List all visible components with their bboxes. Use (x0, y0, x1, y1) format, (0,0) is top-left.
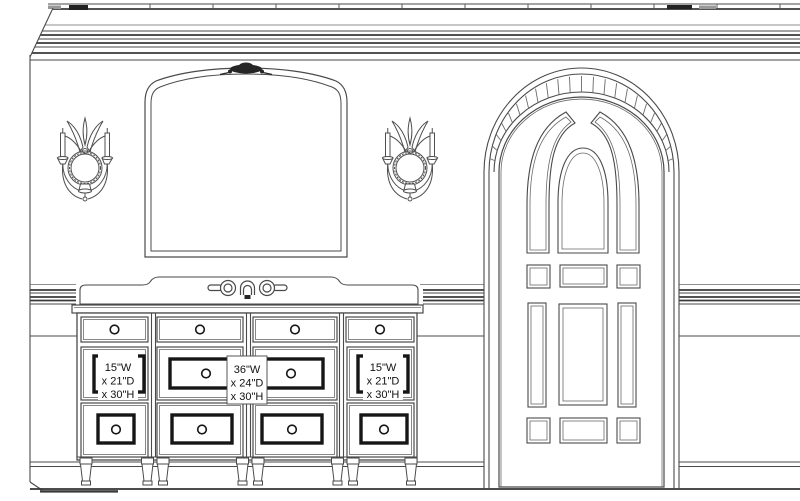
dimension-label-center: 36"W x 24"D x 30"H (227, 356, 267, 404)
mirror-frame-outer (145, 68, 347, 257)
elevation-drawing: 15"W x 21"D x 30"H 36"W x 24"D x 30"H 15… (0, 0, 800, 501)
vanity-leg (142, 458, 154, 485)
sconce-left (58, 118, 113, 201)
mirror (145, 63, 347, 258)
vanity-cabinet: 15"W x 21"D x 30"H 36"W x 24"D x 30"H 15… (77, 313, 417, 460)
dimension-label-right: 15"W x 21"D x 30"H (363, 352, 403, 401)
dimension-text: 15"W (105, 362, 132, 374)
drawer-knob (198, 425, 207, 434)
dimension-text: x 30"H (102, 389, 135, 401)
floor-line (30, 489, 800, 493)
drawer-knob (202, 369, 211, 378)
door-slab (499, 97, 664, 487)
vanity-leg (252, 458, 264, 485)
vanity-leg (405, 458, 417, 485)
vanity-leg (80, 458, 92, 485)
vanity-leg (347, 458, 359, 485)
drawer-knob (110, 325, 119, 334)
drawer-knob (288, 425, 297, 434)
vanity-countertop (72, 305, 423, 313)
chair-rail-middle-segment (417, 285, 484, 337)
vanity-leg (237, 458, 249, 485)
dimension-text: 15"W (370, 362, 397, 374)
sconce-right (383, 118, 438, 201)
dimension-text: x 30"H (231, 391, 264, 403)
door (484, 68, 679, 489)
drawer-knob (376, 325, 385, 334)
dimension-text: 36"W (234, 364, 261, 376)
drawer-knob (380, 425, 389, 434)
dimension-text: x 21"D (367, 376, 400, 388)
crown-molding (30, 25, 800, 60)
chair-rail-right-segment (679, 285, 800, 337)
vanity: 15"W x 21"D x 30"H 36"W x 24"D x 30"H 15… (72, 277, 423, 485)
drawer-knob (287, 369, 296, 378)
vanity-leg (332, 458, 344, 485)
dimension-text: x 24"D (231, 378, 264, 390)
drawer-knob (291, 325, 300, 334)
drawer-knob (196, 325, 205, 334)
wall-left-corner (30, 8, 53, 490)
dimension-label-left: 15"W x 21"D x 30"H (98, 352, 138, 401)
dimension-text: x 30"H (367, 389, 400, 401)
drawer-knob (112, 425, 121, 434)
dimension-text: x 21"D (102, 376, 135, 388)
vanity-leg (157, 458, 169, 485)
chair-rail-left-segment (30, 285, 77, 337)
